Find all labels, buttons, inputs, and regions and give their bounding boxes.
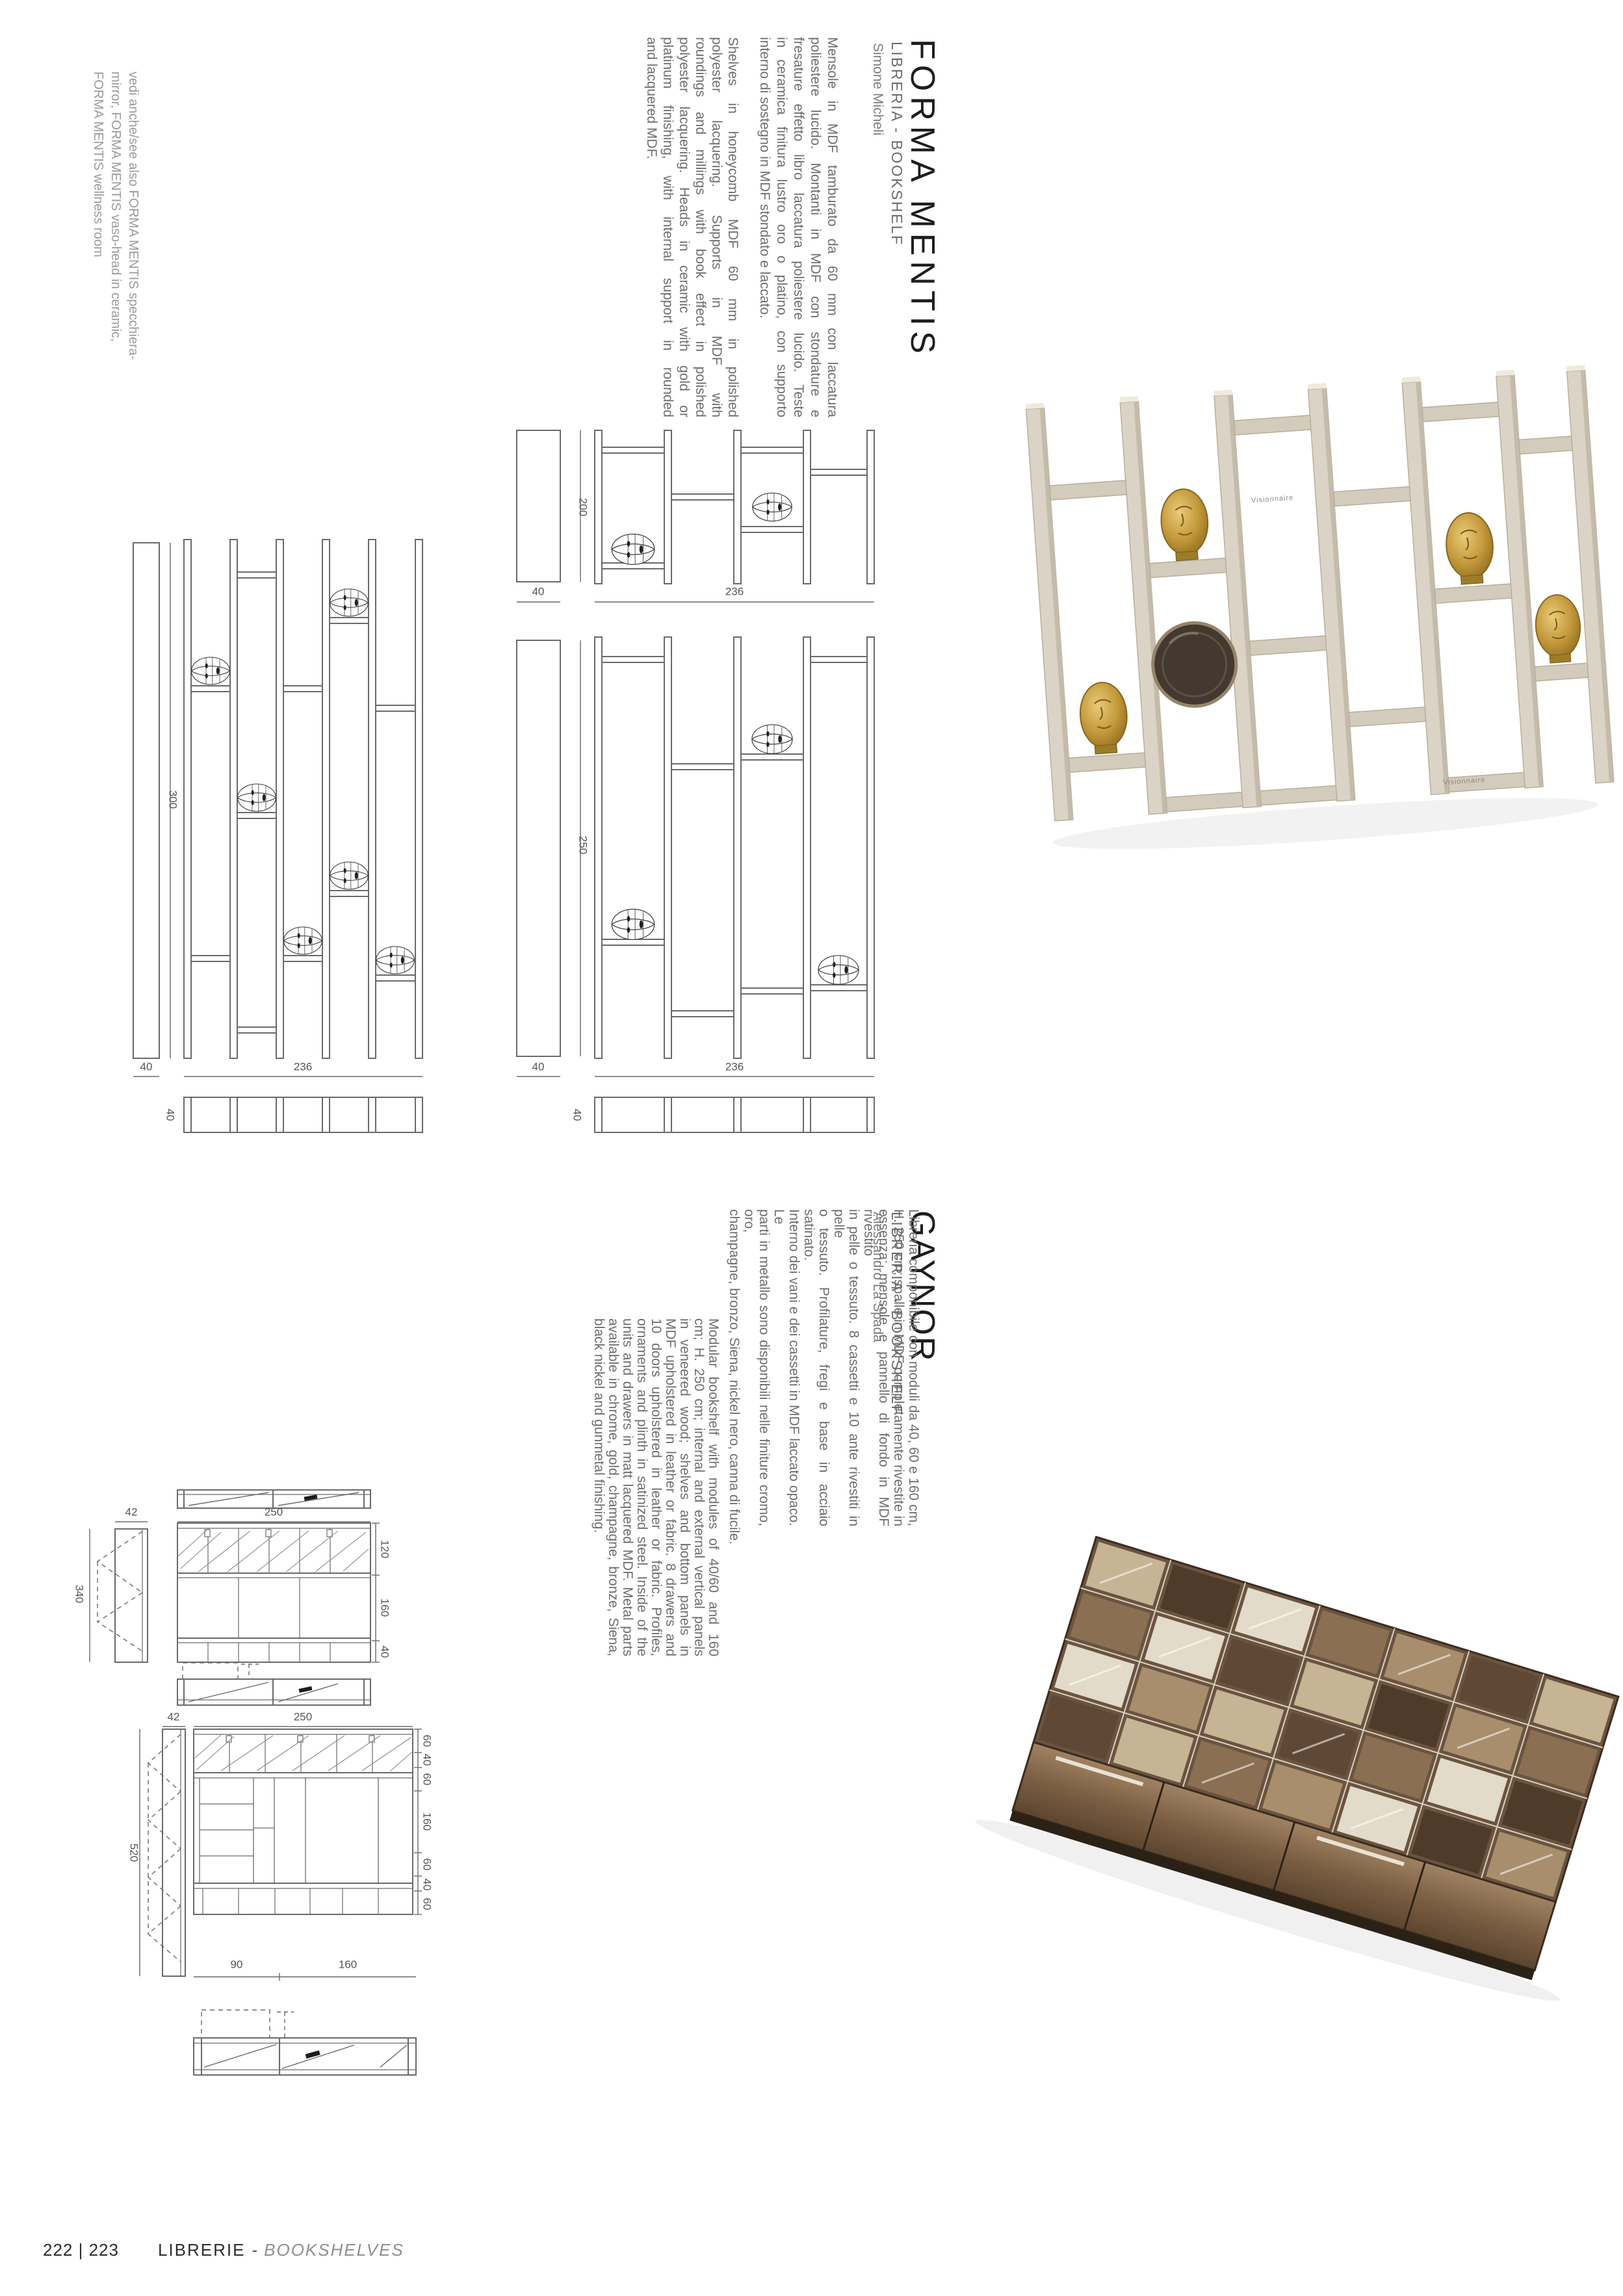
fm-product-photo [1022, 365, 1617, 859]
text-line: cm; H. 250 cm; internal and external ver… [692, 1318, 706, 1656]
fm-a-height-dim: 200 [578, 498, 589, 516]
text-line: poliestere lucido. Montanti in MDF con s… [807, 37, 824, 417]
text-line: interno di sostegno in MDF stondato e la… [756, 37, 773, 417]
text-line: Libreria componibile con moduli da 40, 6… [906, 1209, 921, 1526]
fm-drawing-set-200 [517, 430, 874, 602]
gaynor1-width-dim: 250 [265, 1507, 283, 1518]
gaynor-product-photo [971, 1528, 1623, 2015]
text-line: o tessuto. Profilature, fregi e base in … [801, 1209, 831, 1526]
gaynor2-width-dim: 250 [294, 1712, 312, 1723]
text-line: essenza; mensole e pannello di fondo in … [861, 1209, 891, 1526]
text-line: parti in metallo sono disponibili nelle … [742, 1209, 772, 1526]
fm-b-height-dim: 300 [168, 790, 179, 809]
text-line: ornaments and plinth in satinized steel.… [634, 1318, 649, 1656]
text-line: champagne, bronzo, Siena, nickel nero, c… [727, 1209, 742, 1545]
page-numbers: 222 | 223 [43, 2240, 119, 2260]
text-line: Shelves in honeycomb MDF 60 mm in polish… [725, 37, 741, 417]
fm-c-height-dim: 250 [578, 836, 589, 854]
fm-c-top-depth-dim: 40 [572, 1109, 583, 1121]
gaynor1-side-dim: 340 [74, 1585, 85, 1603]
gaynor-drawing-group1 [90, 1490, 380, 1705]
fm-designer: Simone Micheli [871, 43, 885, 135]
catalog-page: FORMA MENTIS LIBRERIA - BOOKSHELF Simone… [0, 0, 1623, 2296]
text-line: H. 250 cm; spalle in MDF completamente r… [891, 1209, 906, 1526]
gaynor1-section-120: 120 [380, 1540, 391, 1558]
gaynor1-section-160: 160 [380, 1598, 391, 1617]
fm-c-side-dim: 40 [532, 1062, 545, 1073]
text-line: Mensole in MDF tamburato da 60 mm con la… [824, 37, 840, 417]
text-line: Interno dei vani e dei cassetti in MDF l… [772, 1209, 801, 1526]
fm-a-side-dim: 40 [532, 586, 545, 597]
text-line: FORMA MENTIS wellness room [89, 72, 107, 360]
fm-a-width-dim: 236 [725, 586, 744, 597]
footer-section-english: BOOKSHELVES [264, 2240, 404, 2260]
text-line: 10 doors upholstered in leather or fabri… [649, 1318, 663, 1656]
fm-title: FORMA MENTIS [905, 39, 939, 359]
page-footer: 222 | 223 LIBRERIE - BOOKSHELVES [43, 2240, 404, 2260]
fm-description-english: Shelves in honeycomb MDF 60 mm in polish… [643, 37, 741, 417]
fm-subtitle: LIBRERIA - BOOKSHELF [889, 42, 904, 246]
gaynor2-sec-4: 60 [422, 1859, 433, 1871]
gaynor2-sec-6: 60 [422, 1898, 433, 1911]
fm-b-width-dim: 236 [294, 1062, 312, 1073]
fm-see-also-note: vedi anche/see also FORMA MENTIS specchi… [89, 72, 142, 360]
gaynor1-section-40: 40 [380, 1646, 391, 1658]
text-line: and lacquered MDF. [643, 37, 660, 417]
gaynor2-sec-5: 40 [422, 1879, 433, 1891]
gaynor2-sec-3: 160 [422, 1812, 433, 1831]
text-line: polyester lacquering. Heads in ceramic w… [676, 37, 692, 417]
fm-description-italian: Mensole in MDF tamburato da 60 mm con la… [756, 37, 840, 417]
fm-drawing-set-300 [133, 540, 422, 1132]
text-line: Modular bookshelf with modules of 40/60 … [706, 1318, 720, 1656]
text-line: polyester lacquering. Supports in MDF wi… [708, 37, 725, 417]
gaynor2-sec-2: 60 [422, 1773, 433, 1786]
fm-b-top-depth-dim: 40 [165, 1109, 176, 1121]
gaynor1-depth-dim: 42 [125, 1507, 138, 1518]
gaynor2-sec-1: 40 [422, 1754, 433, 1766]
gaynor2-bottom-90: 90 [231, 1959, 243, 1970]
text-line: platinum finishing, with internal suppor… [660, 37, 676, 417]
text-line: fresature effetto libro laccatura polies… [790, 37, 807, 417]
gaynor-description-italian: Libreria componibile con moduli da 40, 6… [727, 1209, 921, 1545]
fm-c-width-dim: 236 [725, 1062, 744, 1073]
text-line: in veneered wood; shelves and bottom pan… [677, 1318, 692, 1656]
text-line: black nickel and gunmetal finishing. [591, 1318, 606, 1656]
fm-drawing-set-250 [517, 637, 874, 1132]
gaynor2-depth-dim: 42 [168, 1712, 180, 1723]
text-line: available in chrome, gold, champagne, br… [606, 1318, 620, 1656]
text-line: roundings and millings with book effect … [692, 37, 708, 417]
text-line: in pelle o tessuto. 8 cassetti e 10 ante… [831, 1209, 861, 1526]
gaynor2-sec-0: 60 [422, 1735, 433, 1747]
text-line: vedi anche/see also FORMA MENTIS specchi… [124, 72, 142, 360]
gaynor-drawing-group2 [140, 1727, 422, 2075]
text-line: units and drawers in matt lacquered MDF.… [620, 1318, 634, 1656]
footer-section-italian: LIBRERIE [158, 2240, 246, 2260]
gaynor2-side-dim: 520 [129, 1844, 140, 1862]
footer-separator: - [252, 2240, 257, 2260]
gaynor2-bottom-160: 160 [339, 1959, 357, 1970]
gaynor-description-english: Modular bookshelf with modules of 40/60 … [591, 1318, 720, 1656]
text-line: mirror, FORMA MENTIS vaso-head in cerami… [107, 72, 124, 360]
text-line: MDF upholstered in leather or fabric. 8 … [663, 1318, 677, 1656]
fm-b-side-dim: 40 [140, 1062, 153, 1073]
text-line: in ceramica finitura lustro oro o platin… [773, 37, 790, 417]
